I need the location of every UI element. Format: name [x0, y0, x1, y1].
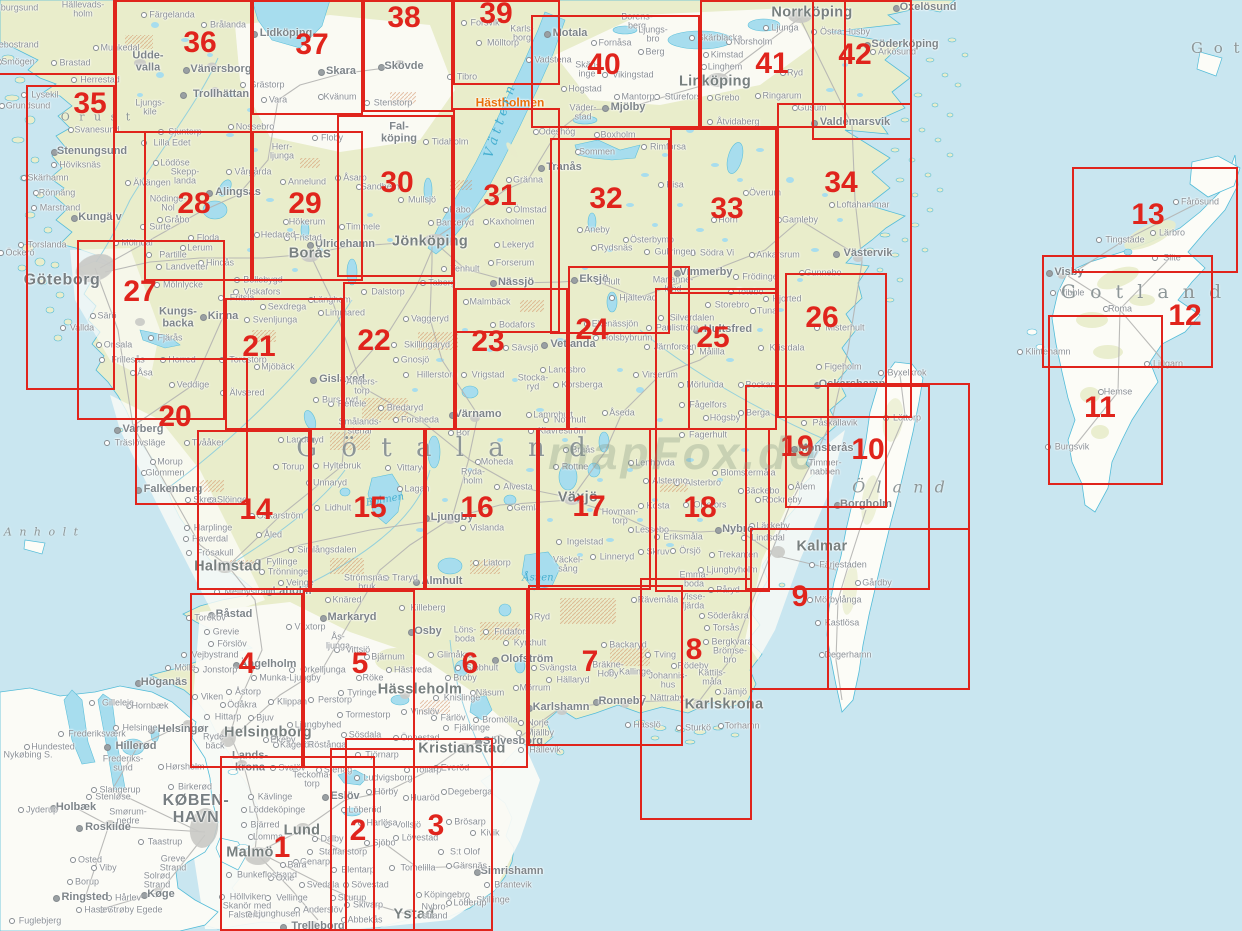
sheet-number-36[interactable]: 36	[183, 28, 216, 58]
sheet-number-12[interactable]: 12	[1168, 301, 1201, 331]
town-dot	[9, 918, 15, 924]
sheet-number-27[interactable]: 27	[123, 277, 156, 307]
place-label: Køge	[147, 889, 175, 901]
sheet-number-24[interactable]: 24	[575, 315, 608, 345]
place-label: Taastrup	[148, 837, 183, 846]
sheet-number-31[interactable]: 31	[483, 181, 516, 211]
sheet-number-28[interactable]: 28	[177, 189, 210, 219]
town-dot	[76, 825, 83, 832]
sheet-number-15[interactable]: 15	[353, 493, 386, 523]
place-label: Frederiks- sund	[103, 755, 144, 774]
sheet-number-40[interactable]: 40	[587, 50, 620, 80]
map-viewport: mapFox.de 353637383940414234282930313233…	[0, 0, 1242, 931]
place-label: Helsinge	[122, 723, 157, 732]
sheet-number-11[interactable]: 11	[1084, 393, 1116, 423]
sheet-number-30[interactable]: 30	[380, 168, 413, 198]
sheet-number-39[interactable]: 39	[479, 0, 512, 29]
sheet-number-4[interactable]: 4	[239, 649, 256, 679]
town-dot	[0, 103, 5, 109]
sheet-number-35[interactable]: 35	[73, 89, 106, 119]
sheet-number-41[interactable]: 41	[755, 49, 788, 79]
region-label: G o t s	[1191, 39, 1242, 57]
place-label: Hillerød	[116, 741, 157, 753]
town-dot	[104, 744, 111, 751]
sheet-number-5[interactable]: 5	[352, 649, 369, 679]
watermark: mapFox.de	[548, 426, 818, 480]
town-dot	[1017, 349, 1023, 355]
town-dot	[71, 77, 77, 83]
sheet-number-25[interactable]: 25	[696, 323, 729, 353]
region-label: A n h o l t	[4, 526, 80, 539]
place-label: Birkerød	[178, 782, 212, 791]
place-label: Nykøbing S.	[3, 750, 52, 759]
sheet-outline-36[interactable]	[115, 0, 252, 133]
sheet-number-3[interactable]: 3	[428, 811, 445, 841]
sheet-number-16[interactable]: 16	[460, 493, 493, 523]
sheet-number-10[interactable]: 10	[851, 435, 884, 465]
town-dot	[53, 895, 60, 902]
town-dot	[184, 525, 190, 531]
sheet-outline-9[interactable]	[750, 528, 970, 690]
sheet-number-13[interactable]: 13	[1131, 200, 1164, 230]
town-dot	[104, 440, 110, 446]
place-label: Hällevik	[529, 745, 561, 754]
place-label: Ringsted	[61, 892, 108, 904]
place-label: Höganäs	[141, 677, 187, 689]
town-dot	[76, 907, 82, 913]
sheet-number-34[interactable]: 34	[824, 168, 857, 198]
place-label: Borup	[75, 877, 99, 886]
sheet-number-38[interactable]: 38	[387, 3, 420, 33]
sheet-number-33[interactable]: 33	[710, 194, 743, 224]
sheet-number-14[interactable]: 14	[239, 495, 272, 525]
sheet-number-17[interactable]: 17	[572, 492, 605, 522]
place-label: Fuglebjerg	[19, 916, 62, 925]
sheet-outline-3[interactable]	[345, 738, 493, 931]
sheet-number-32[interactable]: 32	[589, 184, 622, 214]
place-label: Strøby Egede	[107, 905, 162, 914]
town-dot	[186, 550, 192, 556]
town-dot	[114, 427, 121, 434]
sheet-number-8[interactable]: 8	[686, 635, 703, 665]
town-dot	[91, 865, 97, 871]
place-label: Stenløse	[95, 792, 131, 801]
place-label: Hårlev	[115, 893, 141, 902]
sheet-number-2[interactable]: 2	[350, 816, 367, 846]
town-dot	[18, 807, 24, 813]
sheet-number-22[interactable]: 22	[357, 326, 390, 356]
place-label: Hornbæk	[131, 701, 168, 710]
sheet-outline-23[interactable]	[455, 288, 568, 430]
place-label: Jyderup	[26, 805, 58, 814]
place-label: Herrestad	[80, 75, 120, 84]
place-label: Brantevik	[494, 880, 532, 889]
sheet-number-20[interactable]: 20	[158, 402, 191, 432]
place-label: Gilleleje	[102, 698, 134, 707]
place-label: Viby	[99, 863, 116, 872]
place-label: Smørum- nedre	[109, 808, 147, 827]
sheet-number-42[interactable]: 42	[838, 40, 871, 70]
sheet-number-1[interactable]: 1	[274, 833, 291, 863]
place-label: Haslev	[84, 905, 112, 914]
place-label: Frederiksværk	[68, 729, 126, 738]
sheet-number-23[interactable]: 23	[471, 327, 504, 357]
sheet-outline-4[interactable]	[190, 593, 303, 768]
place-label: Holbæk	[56, 802, 96, 814]
sheet-number-7[interactable]: 7	[582, 647, 599, 677]
town-dot	[89, 700, 95, 706]
sheet-number-18[interactable]: 18	[683, 493, 716, 523]
sheet-number-26[interactable]: 26	[805, 303, 838, 333]
sheet-number-6[interactable]: 6	[462, 649, 479, 679]
sheet-outline-8[interactable]	[640, 578, 752, 820]
sheet-number-9[interactable]: 9	[792, 582, 809, 612]
sheet-number-29[interactable]: 29	[288, 189, 321, 219]
sheet-number-37[interactable]: 37	[295, 30, 328, 60]
sheet-number-21[interactable]: 21	[242, 332, 275, 362]
place-label: Solrød Strand	[144, 872, 171, 891]
sheet-outline-partial[interactable]	[0, 0, 115, 75]
